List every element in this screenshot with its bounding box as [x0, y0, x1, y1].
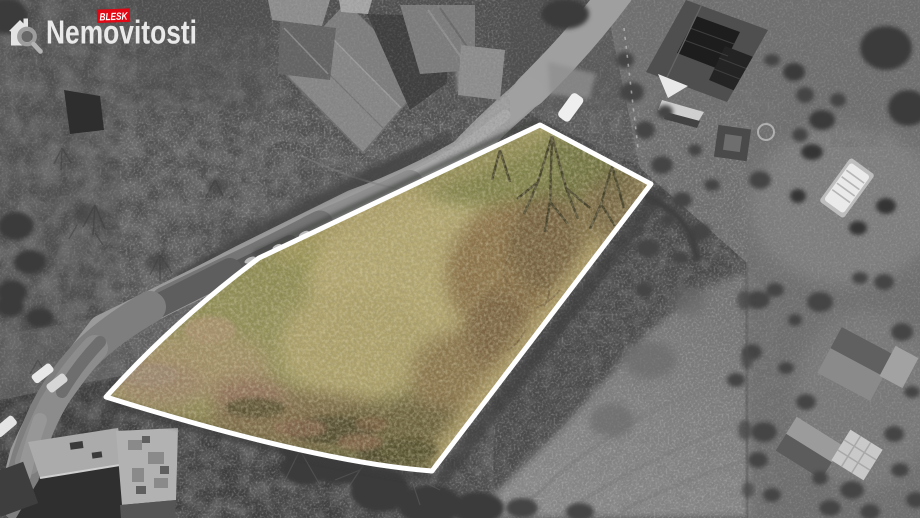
svg-text:Nemovitosti: Nemovitosti [46, 14, 197, 51]
